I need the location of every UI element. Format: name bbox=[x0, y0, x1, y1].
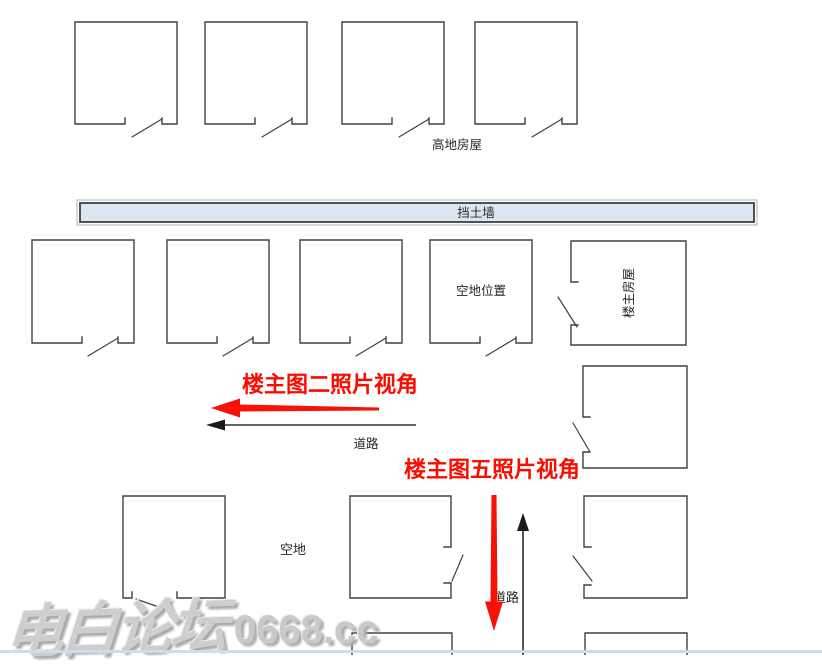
vacant-position-label: 空地位置 bbox=[456, 283, 506, 298]
house-mid-1 bbox=[32, 240, 134, 356]
road-arrow-left bbox=[206, 420, 416, 431]
site-plan-diagram: 高地房屋 挡土墙 空地位置 楼主房屋 楼主图二照片视角 道路 楼主图五照片视角 bbox=[0, 0, 822, 655]
door-swing bbox=[399, 119, 429, 137]
highland-houses-label: 高地房屋 bbox=[432, 137, 482, 152]
owner-house-label: 楼主房屋 bbox=[621, 268, 636, 318]
door-swing bbox=[573, 423, 590, 452]
door-swing bbox=[452, 555, 463, 581]
door-swing bbox=[132, 119, 162, 137]
house-outline bbox=[75, 22, 177, 124]
road-upper-label: 道路 bbox=[353, 436, 379, 451]
house-outline bbox=[167, 240, 269, 343]
house-top-1 bbox=[75, 22, 177, 137]
house-top-4 bbox=[475, 22, 577, 137]
house-outline bbox=[584, 496, 687, 598]
house-outline bbox=[205, 22, 307, 124]
house-outline bbox=[32, 240, 134, 343]
road-arrow-up bbox=[517, 513, 529, 655]
house-top-2 bbox=[205, 22, 307, 137]
vacant-position-house: 空地位置 bbox=[430, 240, 532, 356]
owner-house: 楼主房屋 bbox=[558, 241, 686, 345]
owner-house-lower bbox=[573, 366, 687, 468]
house-outline bbox=[475, 22, 577, 124]
door-swing bbox=[558, 297, 577, 327]
retaining-wall: 挡土墙 bbox=[77, 200, 757, 225]
house-outline bbox=[350, 496, 451, 598]
house-bottom-3 bbox=[573, 496, 687, 598]
house-bottom-2 bbox=[350, 496, 463, 598]
road-arrow-up-head bbox=[517, 513, 529, 531]
house-outline bbox=[342, 22, 444, 124]
house-outline bbox=[123, 496, 225, 598]
door-swing bbox=[573, 556, 592, 581]
door-swing bbox=[262, 119, 292, 137]
house-bottom-1 bbox=[123, 496, 225, 611]
door-swing bbox=[532, 119, 562, 137]
door-swing bbox=[223, 338, 253, 356]
retaining-wall-body bbox=[80, 203, 754, 222]
house-mid-2 bbox=[167, 240, 269, 356]
retaining-wall-label: 挡土墙 bbox=[457, 206, 495, 220]
vacant-label: 空地 bbox=[280, 542, 306, 557]
photo2-view-label: 楼主图二照片视角 bbox=[242, 372, 418, 397]
house-mid-3 bbox=[300, 240, 402, 356]
door-swing bbox=[356, 338, 386, 356]
door-swing bbox=[88, 338, 118, 356]
photo2-view-arrow bbox=[211, 399, 379, 418]
road-arrow-left-head bbox=[206, 420, 225, 431]
bottom-edge-line bbox=[0, 650, 822, 653]
door-swing bbox=[136, 599, 170, 611]
house-top-3 bbox=[342, 22, 444, 137]
house-outline bbox=[583, 366, 687, 468]
door-swing bbox=[486, 338, 516, 356]
photo5-view-arrow bbox=[485, 495, 503, 631]
house-outline bbox=[300, 240, 402, 343]
photo5-view-label: 楼主图五照片视角 bbox=[404, 457, 580, 482]
